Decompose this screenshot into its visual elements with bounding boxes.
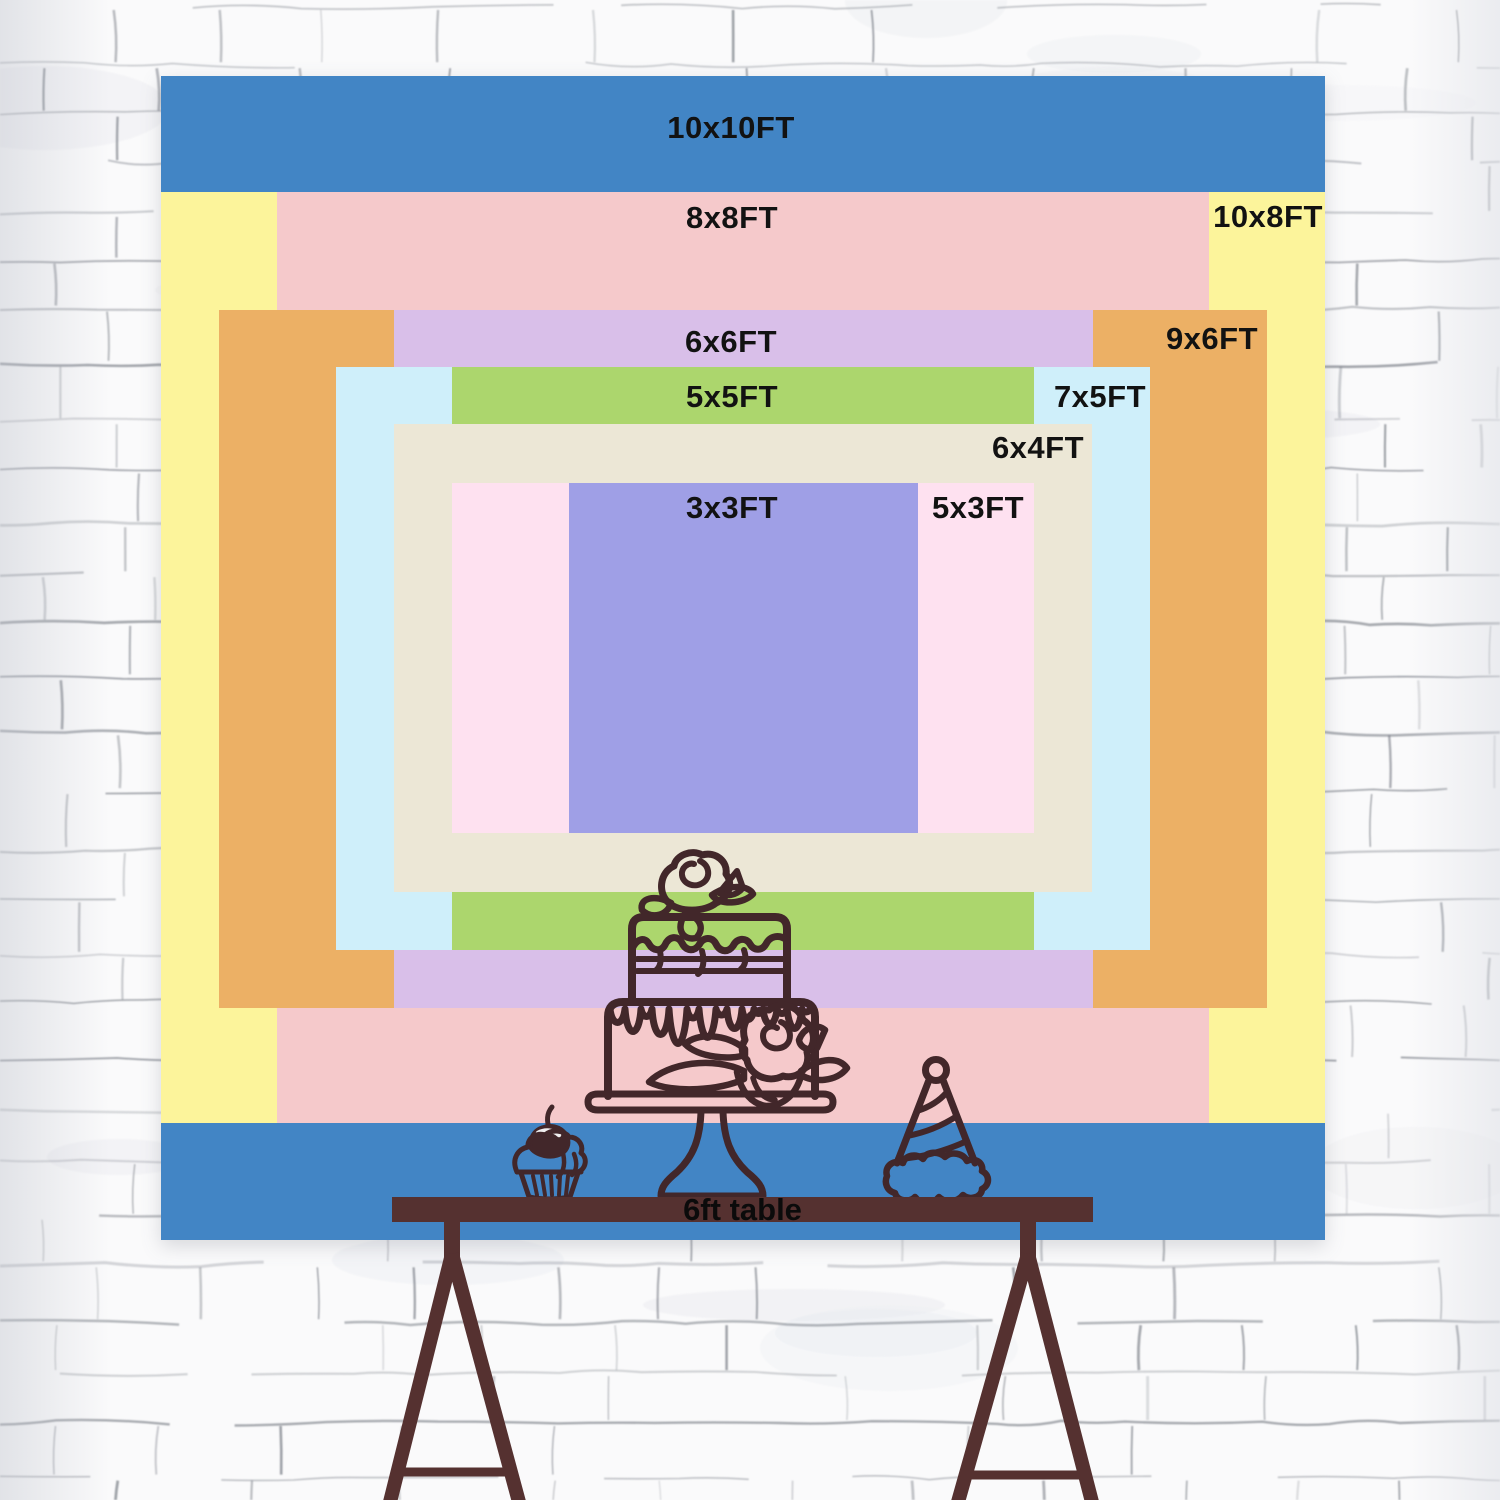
party-hat-icon: [886, 1060, 988, 1204]
cupcake-icon: [515, 1107, 585, 1199]
table-legs: [390, 1220, 1092, 1500]
table-top: 6ft table: [392, 1197, 1093, 1222]
backdrop-size-chart-scene: 10x10FT 8x8FT 10x8FT 6x6FT 9x6FT 5x5FT 7…: [0, 0, 1500, 1500]
line-art-illustrations: [0, 0, 1500, 1500]
tiered-cake-icon: [588, 853, 847, 1196]
table-size-label: 6ft table: [683, 1197, 802, 1222]
